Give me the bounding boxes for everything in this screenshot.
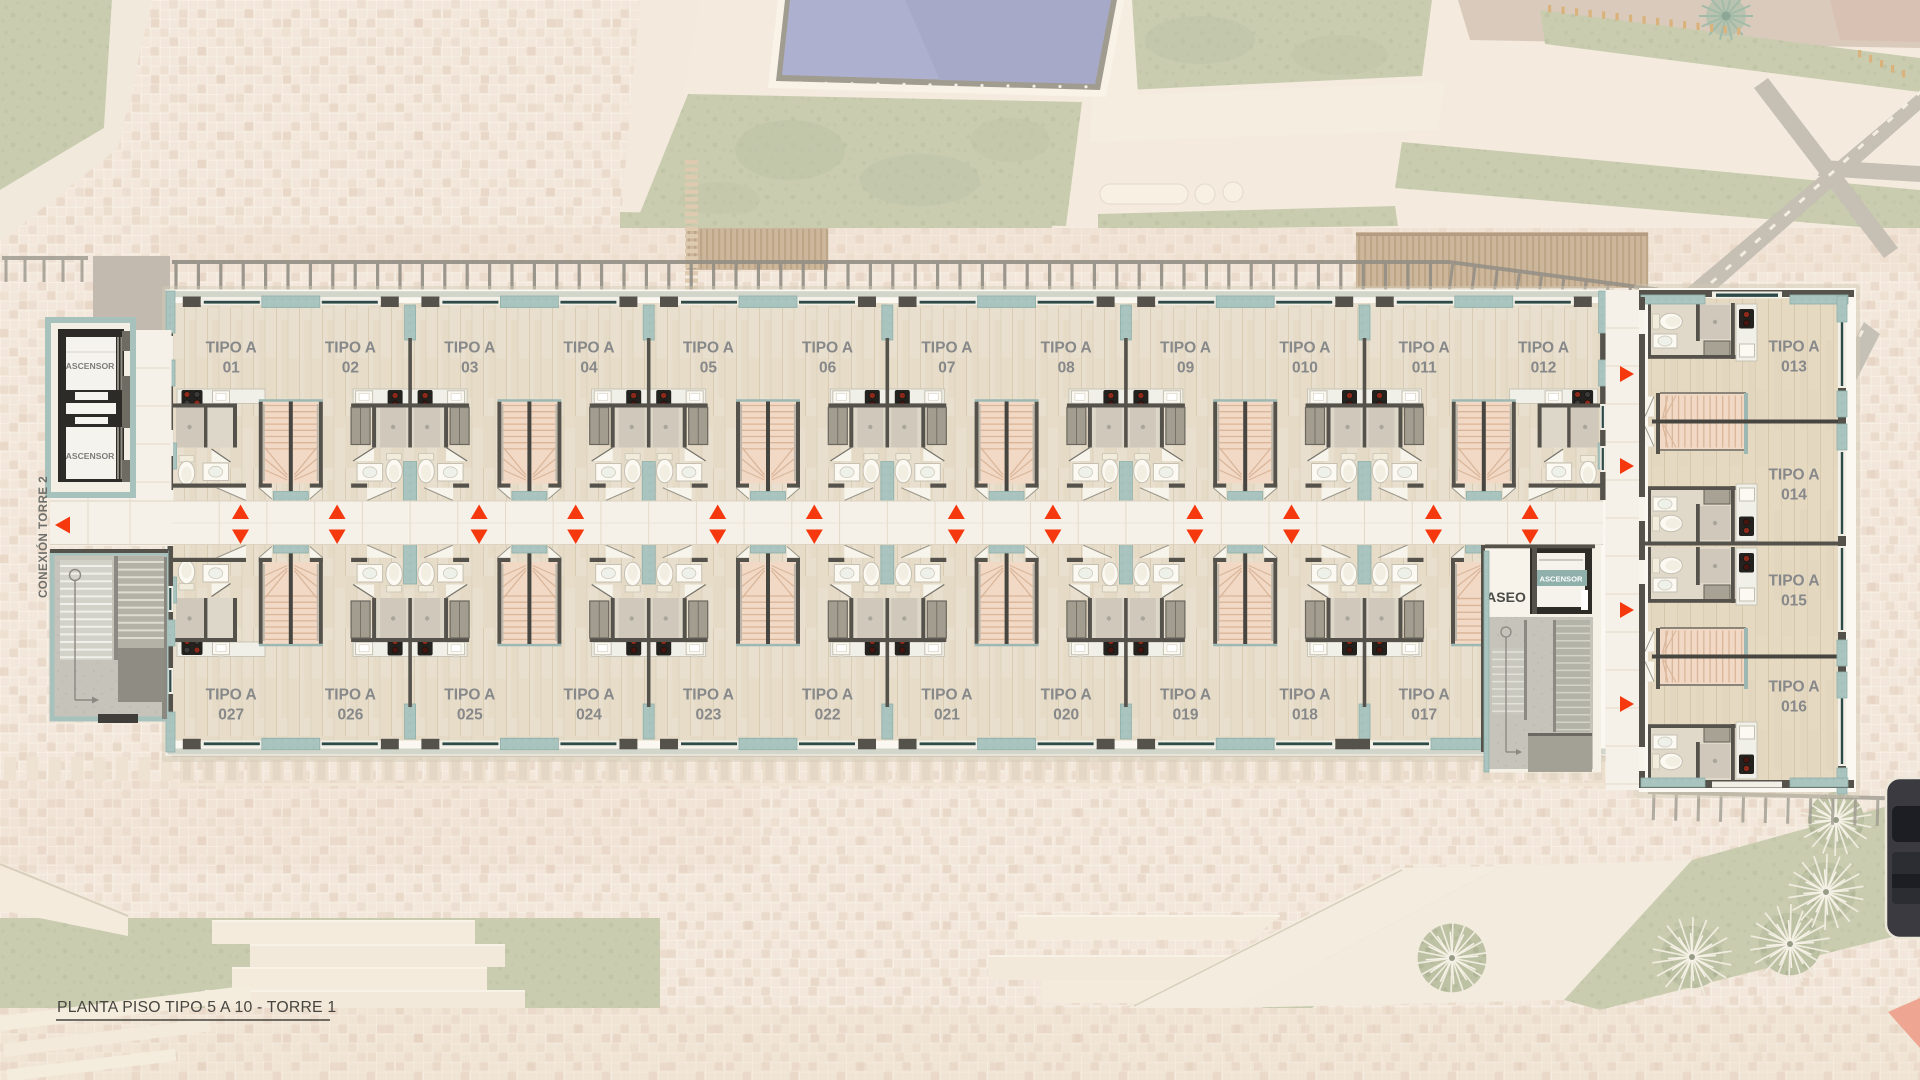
svg-text:02: 02 [342, 360, 359, 377]
svg-text:ASCENSOR: ASCENSOR [66, 361, 115, 371]
svg-text:013: 013 [1781, 359, 1807, 376]
svg-text:TIPO A: TIPO A [802, 687, 853, 704]
svg-text:05: 05 [700, 360, 718, 377]
svg-text:TIPO A: TIPO A [1768, 339, 1819, 356]
svg-text:TIPO A: TIPO A [444, 687, 495, 704]
svg-text:018: 018 [1292, 707, 1318, 724]
svg-text:TIPO A: TIPO A [683, 340, 734, 357]
svg-text:TIPO A: TIPO A [1041, 687, 1092, 704]
svg-text:TIPO A: TIPO A [1160, 687, 1211, 704]
svg-text:026: 026 [337, 707, 363, 724]
svg-text:TIPO A: TIPO A [325, 340, 376, 357]
svg-text:012: 012 [1531, 360, 1557, 377]
svg-text:TIPO A: TIPO A [1279, 687, 1330, 704]
svg-text:TIPO A: TIPO A [1768, 573, 1819, 590]
svg-text:TIPO A: TIPO A [1041, 340, 1092, 357]
svg-text:TIPO A: TIPO A [206, 687, 257, 704]
svg-text:017: 017 [1411, 707, 1437, 724]
svg-text:020: 020 [1053, 707, 1079, 724]
svg-text:TIPO A: TIPO A [921, 687, 972, 704]
svg-text:019: 019 [1173, 707, 1199, 724]
svg-text:08: 08 [1058, 360, 1076, 377]
svg-text:PLANTA PISO TIPO 5 A 10 - TORR: PLANTA PISO TIPO 5 A 10 - TORRE 1 [57, 999, 336, 1016]
svg-text:027: 027 [218, 707, 244, 724]
svg-text:CONEXIÓN TORRE 2: CONEXIÓN TORRE 2 [37, 476, 50, 598]
svg-text:07: 07 [938, 360, 955, 377]
svg-text:TIPO A: TIPO A [1279, 340, 1330, 357]
svg-text:021: 021 [934, 707, 960, 724]
svg-text:TIPO A: TIPO A [206, 340, 257, 357]
svg-text:015: 015 [1781, 593, 1807, 610]
svg-text:010: 010 [1292, 360, 1318, 377]
svg-text:TIPO A: TIPO A [1399, 687, 1450, 704]
svg-text:TIPO A: TIPO A [921, 340, 972, 357]
svg-text:ASCENSOR: ASCENSOR [66, 451, 115, 461]
svg-text:TIPO A: TIPO A [1518, 340, 1569, 357]
svg-text:03: 03 [461, 360, 479, 377]
svg-text:016: 016 [1781, 699, 1807, 716]
svg-text:TIPO A: TIPO A [1768, 467, 1819, 484]
svg-text:TIPO A: TIPO A [563, 687, 614, 704]
svg-text:023: 023 [695, 707, 721, 724]
svg-text:09: 09 [1177, 360, 1195, 377]
svg-text:TIPO A: TIPO A [683, 687, 734, 704]
svg-text:TIPO A: TIPO A [325, 687, 376, 704]
svg-text:011: 011 [1412, 360, 1437, 377]
svg-text:014: 014 [1781, 487, 1807, 504]
svg-text:TIPO A: TIPO A [563, 340, 614, 357]
svg-text:TIPO A: TIPO A [1399, 340, 1450, 357]
svg-text:TIPO A: TIPO A [1160, 340, 1211, 357]
svg-text:025: 025 [457, 707, 483, 724]
svg-text:024: 024 [576, 707, 602, 724]
svg-text:01: 01 [223, 360, 241, 377]
svg-text:022: 022 [815, 707, 841, 724]
svg-text:TIPO A: TIPO A [802, 340, 853, 357]
svg-text:TIPO A: TIPO A [1768, 679, 1819, 696]
svg-text:ASCENSOR: ASCENSOR [1539, 575, 1583, 584]
svg-text:06: 06 [819, 360, 837, 377]
svg-text:04: 04 [580, 360, 598, 377]
svg-text:TIPO A: TIPO A [444, 340, 495, 357]
svg-text:ASEO: ASEO [1486, 589, 1526, 605]
